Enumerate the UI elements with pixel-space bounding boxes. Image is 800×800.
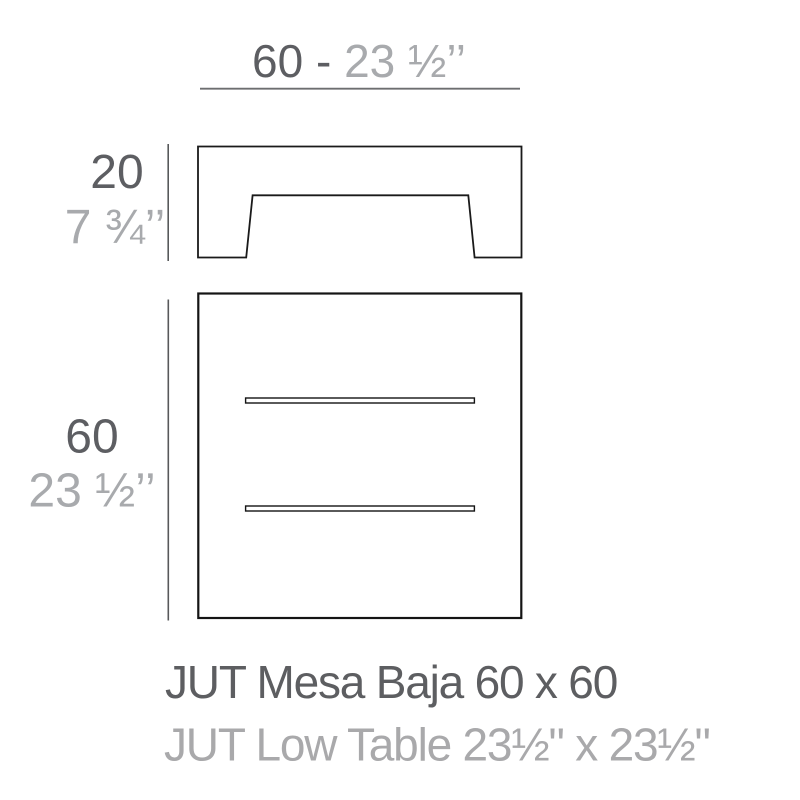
svg-text:7 ¾’’: 7 ¾’’ (65, 201, 166, 254)
svg-text:JUT Low Table 23½" x 23½": JUT Low Table 23½" x 23½" (164, 719, 710, 771)
svg-text:60 - 23 ½’’: 60 - 23 ½’’ (252, 35, 466, 87)
svg-text:20: 20 (90, 146, 143, 199)
svg-text:23 ½’’: 23 ½’’ (28, 465, 155, 518)
svg-text:JUT Mesa Baja 60 x 60: JUT Mesa Baja 60 x 60 (165, 656, 617, 708)
svg-text:60: 60 (65, 411, 118, 464)
